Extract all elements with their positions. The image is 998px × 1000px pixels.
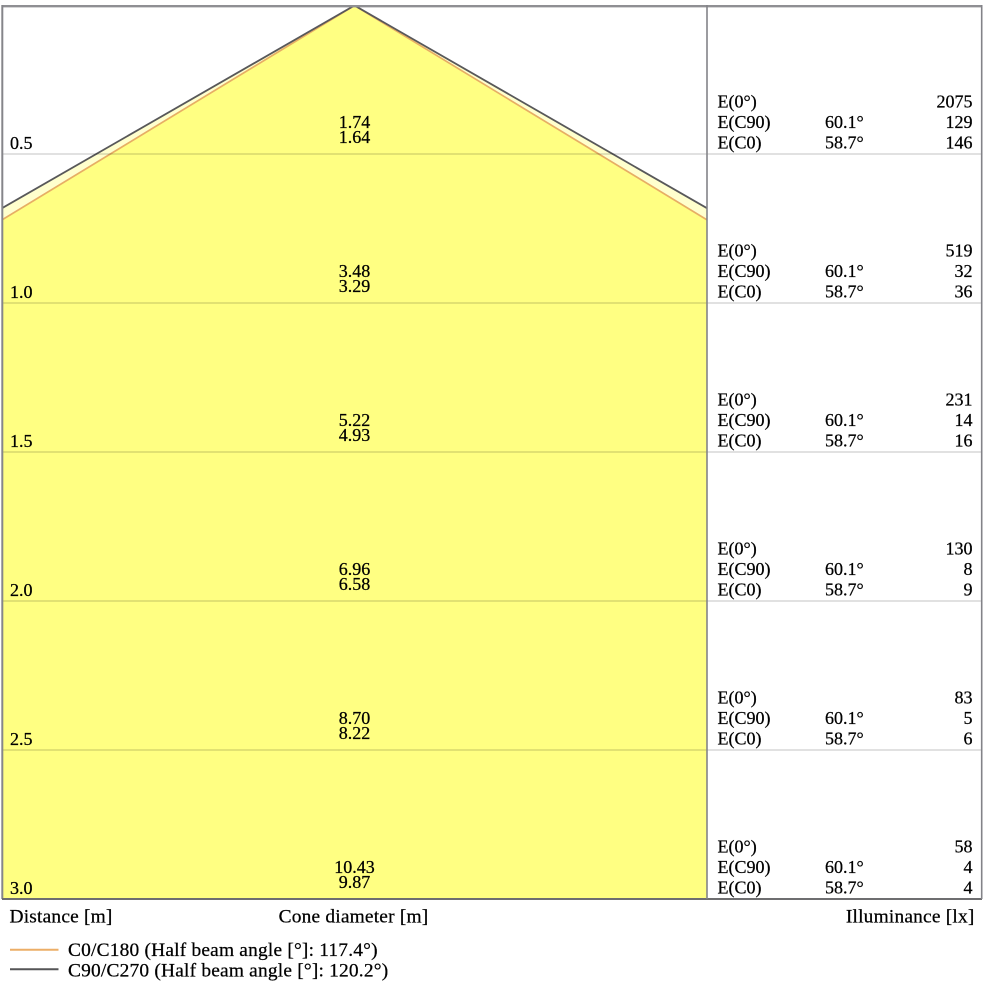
svg-text:E(0°): E(0°) <box>718 92 757 113</box>
svg-text:E(0°): E(0°) <box>718 241 757 262</box>
svg-text:Illuminance [lx]: Illuminance [lx] <box>846 906 975 927</box>
svg-text:58.7°: 58.7° <box>825 579 864 599</box>
svg-text:E(C0): E(C0) <box>718 281 762 302</box>
svg-text:60.1°: 60.1° <box>825 559 864 579</box>
svg-text:2075: 2075 <box>937 92 973 112</box>
svg-text:E(C0): E(C0) <box>718 132 762 153</box>
svg-text:4.93: 4.93 <box>339 425 371 445</box>
svg-text:1.64: 1.64 <box>339 127 371 147</box>
svg-text:1.0: 1.0 <box>10 282 33 302</box>
svg-text:6: 6 <box>964 728 973 748</box>
svg-text:E(0°): E(0°) <box>718 837 757 858</box>
svg-text:E(C0): E(C0) <box>718 877 762 898</box>
svg-text:9: 9 <box>964 579 973 599</box>
svg-text:0.5: 0.5 <box>10 133 33 153</box>
svg-text:2.0: 2.0 <box>10 580 33 600</box>
svg-text:E(C90): E(C90) <box>718 410 771 431</box>
svg-text:E(C0): E(C0) <box>718 728 762 749</box>
svg-text:36: 36 <box>955 281 973 301</box>
svg-text:6.58: 6.58 <box>339 574 371 594</box>
svg-text:58.7°: 58.7° <box>825 877 864 897</box>
svg-text:60.1°: 60.1° <box>825 708 864 728</box>
svg-text:8: 8 <box>964 559 973 579</box>
svg-text:58.7°: 58.7° <box>825 132 864 152</box>
svg-text:3.0: 3.0 <box>10 878 33 898</box>
svg-text:60.1°: 60.1° <box>825 857 864 877</box>
svg-text:60.1°: 60.1° <box>825 261 864 281</box>
svg-text:129: 129 <box>946 112 973 132</box>
svg-text:58.7°: 58.7° <box>825 430 864 450</box>
svg-text:E(C90): E(C90) <box>718 559 771 580</box>
svg-text:32: 32 <box>955 261 973 281</box>
svg-text:60.1°: 60.1° <box>825 112 864 132</box>
svg-text:60.1°: 60.1° <box>825 410 864 430</box>
svg-text:231: 231 <box>946 390 973 410</box>
svg-text:E(0°): E(0°) <box>718 390 757 411</box>
svg-text:C90/C270 (Half beam angle [°]:: C90/C270 (Half beam angle [°]: 120.2°) <box>68 960 388 981</box>
svg-text:4: 4 <box>964 857 973 877</box>
svg-text:58: 58 <box>955 837 973 857</box>
svg-text:2.5: 2.5 <box>10 729 33 749</box>
svg-text:83: 83 <box>955 688 973 708</box>
svg-text:Distance [m]: Distance [m] <box>10 906 113 927</box>
svg-text:C0/C180 (Half beam angle [°]:: C0/C180 (Half beam angle [°]: 117.4°) <box>68 940 378 961</box>
svg-text:146: 146 <box>946 132 973 152</box>
svg-text:E(C90): E(C90) <box>718 112 771 133</box>
svg-text:E(C0): E(C0) <box>718 430 762 451</box>
svg-text:3.29: 3.29 <box>339 276 371 296</box>
svg-text:E(C90): E(C90) <box>718 708 771 729</box>
svg-text:8.22: 8.22 <box>339 723 371 743</box>
svg-text:E(C0): E(C0) <box>718 579 762 600</box>
svg-text:E(0°): E(0°) <box>718 539 757 560</box>
svg-text:E(0°): E(0°) <box>718 688 757 709</box>
svg-text:5: 5 <box>964 708 973 728</box>
svg-text:130: 130 <box>946 539 973 559</box>
svg-text:16: 16 <box>955 430 973 450</box>
svg-text:1.5: 1.5 <box>10 431 33 451</box>
svg-text:E(C90): E(C90) <box>718 261 771 282</box>
svg-text:519: 519 <box>946 241 973 261</box>
svg-text:E(C90): E(C90) <box>718 857 771 878</box>
svg-text:14: 14 <box>955 410 973 430</box>
svg-text:4: 4 <box>964 877 973 897</box>
svg-text:9.87: 9.87 <box>339 872 371 892</box>
svg-text:Cone diameter [m]: Cone diameter [m] <box>279 906 429 927</box>
svg-text:58.7°: 58.7° <box>825 728 864 748</box>
svg-text:58.7°: 58.7° <box>825 281 864 301</box>
